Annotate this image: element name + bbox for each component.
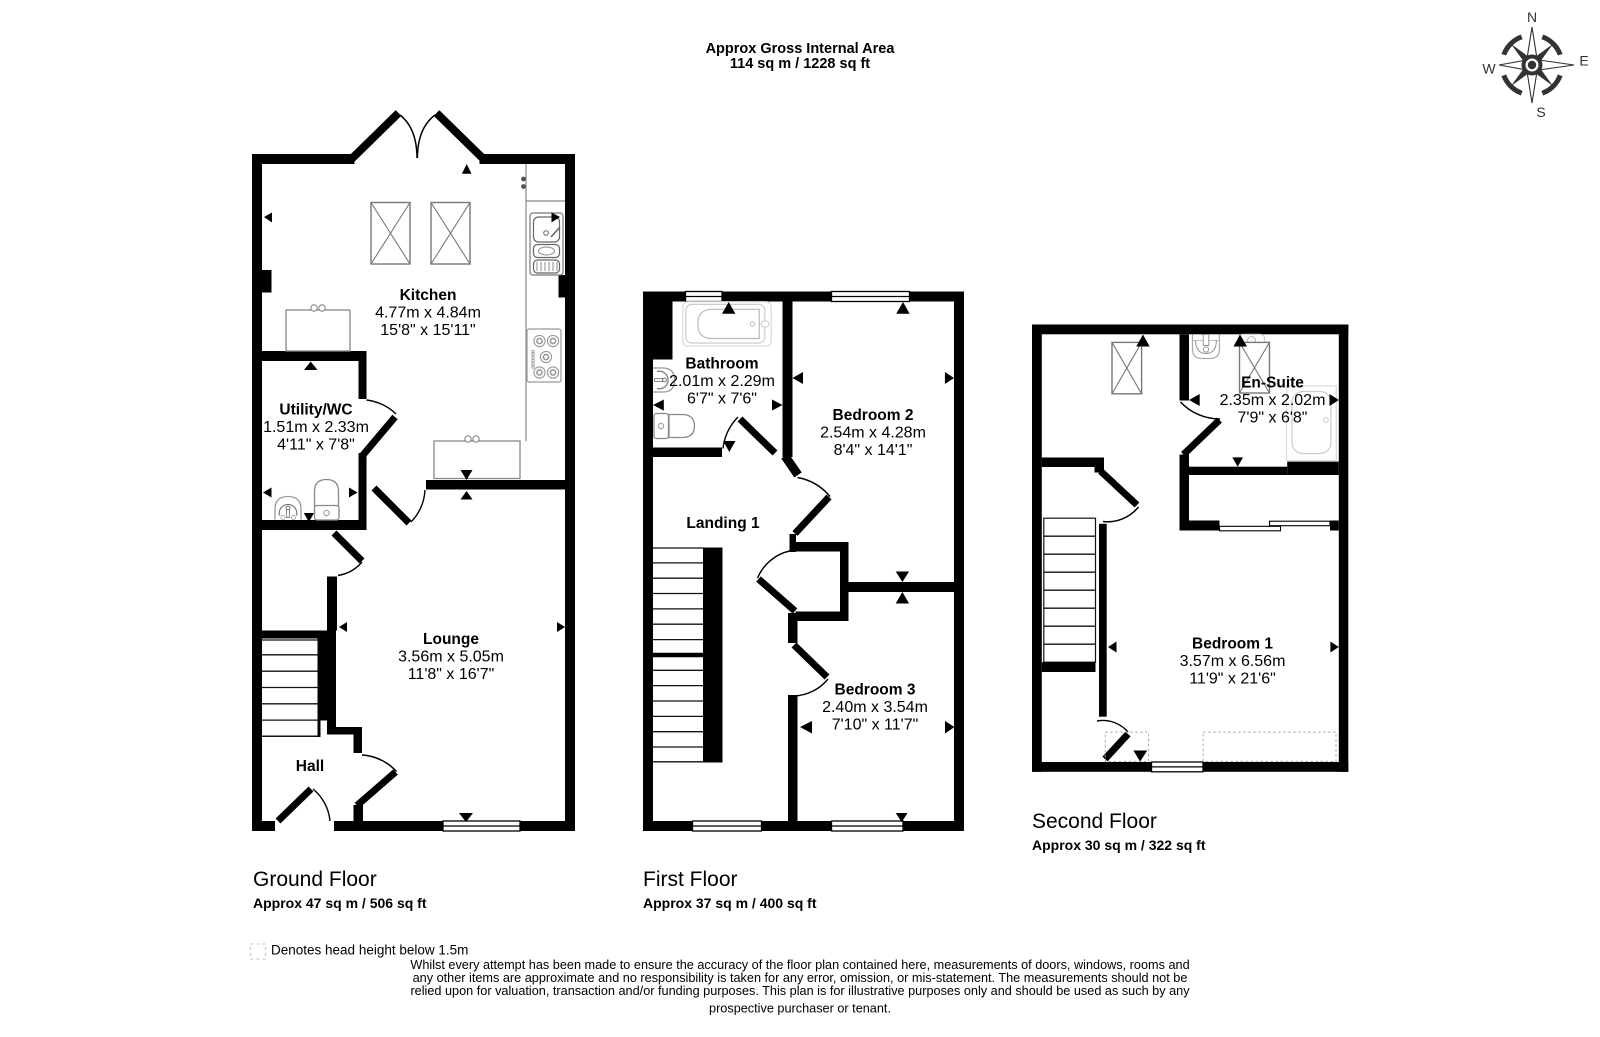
svg-text:W: W xyxy=(1482,61,1496,77)
svg-text:2.35m x 2.02m: 2.35m x 2.02m xyxy=(1220,392,1326,409)
svg-text:Utility/WC: Utility/WC xyxy=(279,402,352,419)
svg-text:3.56m x 5.05m: 3.56m x 5.05m xyxy=(398,648,504,665)
svg-text:15'8" x 15'11": 15'8" x 15'11" xyxy=(380,322,475,339)
svg-text:114 sq m / 1228 sq ft: 114 sq m / 1228 sq ft xyxy=(730,56,870,72)
svg-text:Denotes head height below 1.5m: Denotes head height below 1.5m xyxy=(271,943,468,958)
svg-text:Approx Gross Internal Area: Approx Gross Internal Area xyxy=(706,41,896,57)
svg-text:Lounge: Lounge xyxy=(423,631,479,648)
svg-text:Whilst every attempt has been: Whilst every attempt has been made to en… xyxy=(410,958,1189,972)
svg-text:6'7" x 7'6": 6'7" x 7'6" xyxy=(687,390,757,407)
svg-text:relied upon for valuation, tra: relied upon for valuation, transaction a… xyxy=(410,984,1190,998)
svg-text:First Floor: First Floor xyxy=(643,868,738,891)
svg-text:11'8" x 16'7": 11'8" x 16'7" xyxy=(408,666,495,683)
svg-text:4'11" x 7'8": 4'11" x 7'8" xyxy=(277,436,355,453)
svg-text:2.54m x 4.28m: 2.54m x 4.28m xyxy=(820,424,926,441)
svg-text:2.40m x 3.54m: 2.40m x 3.54m xyxy=(822,699,928,716)
svg-text:Landing 1: Landing 1 xyxy=(686,515,760,532)
svg-text:Approx 37 sq m / 400 sq ft: Approx 37 sq m / 400 sq ft xyxy=(643,895,817,911)
svg-text:7'10" x 11'7": 7'10" x 11'7" xyxy=(832,716,919,733)
svg-text:prospective purchaser or tenan: prospective purchaser or tenant. xyxy=(709,1002,891,1016)
svg-text:8'4" x 14'1": 8'4" x 14'1" xyxy=(834,442,913,459)
svg-text:Second Floor: Second Floor xyxy=(1032,810,1157,833)
svg-text:2.01m x 2.29m: 2.01m x 2.29m xyxy=(669,373,775,390)
svg-text:Bedroom 3: Bedroom 3 xyxy=(835,682,916,699)
svg-text:Bathroom: Bathroom xyxy=(685,356,758,373)
svg-text:11'9" x 21'6": 11'9" x 21'6" xyxy=(1189,670,1276,687)
svg-text:S: S xyxy=(1536,104,1545,120)
svg-text:1.51m x 2.33m: 1.51m x 2.33m xyxy=(263,419,369,436)
svg-text:3.57m x 6.56m: 3.57m x 6.56m xyxy=(1180,653,1286,670)
svg-text:7'9" x 6'8": 7'9" x 6'8" xyxy=(1238,409,1308,426)
svg-text:En-Suite: En-Suite xyxy=(1241,375,1304,392)
svg-text:Kitchen: Kitchen xyxy=(400,287,457,304)
svg-text:Approx 47 sq m / 506 sq ft: Approx 47 sq m / 506 sq ft xyxy=(253,895,427,911)
svg-text:Bedroom 1: Bedroom 1 xyxy=(1192,636,1273,653)
svg-text:Hall: Hall xyxy=(296,758,324,775)
svg-text:Ground Floor: Ground Floor xyxy=(253,868,377,891)
svg-text:Approx 30 sq m / 322 sq ft: Approx 30 sq m / 322 sq ft xyxy=(1032,837,1206,853)
svg-text:E: E xyxy=(1579,53,1588,69)
svg-text:N: N xyxy=(1527,9,1537,25)
svg-text:4.77m x 4.84m: 4.77m x 4.84m xyxy=(375,304,481,321)
svg-text:Bedroom 2: Bedroom 2 xyxy=(833,407,914,424)
svg-text:any other items are approximat: any other items are approximate and no r… xyxy=(413,971,1188,985)
